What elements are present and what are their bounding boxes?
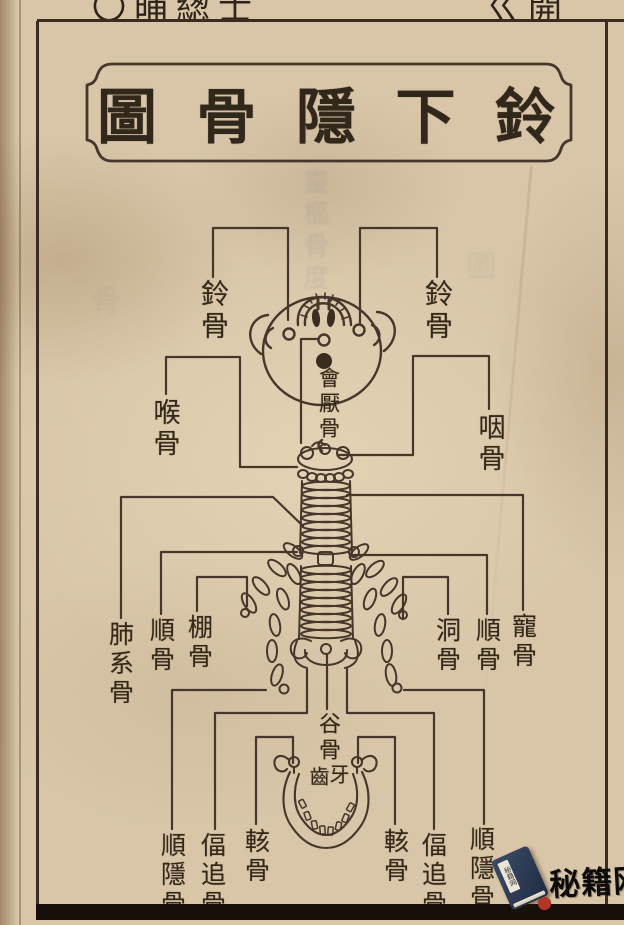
title-char: 骨 [197,69,257,156]
scanned-page: 〇晡緫士 ㄍ開 靈樞骨度 骨 圖 [0,0,624,925]
label-kai-gu-right: 輆骨 [383,828,408,886]
label-shun-gu-right: 順骨 [475,617,500,675]
label-hou-gu: 喉骨 [151,398,178,460]
title-char: 圖 [97,69,157,156]
book-icon-label: 秘籍网 [497,860,520,894]
title-char: 隱 [296,69,356,156]
label-teeth-ya: 牙 [328,764,348,788]
label-yan-gu: 咽骨 [476,413,503,475]
label-chong-gu: 寵骨 [511,613,536,671]
top-fragment-left: 〇晡緫士 [92,0,260,19]
label-shun-yin-gu-right: 順隱骨 [469,826,494,913]
label-gu-gu: 谷骨 [316,712,338,764]
label-ling-gu-left: 鈴骨 [199,279,227,343]
frame-left-border [36,21,39,907]
watermark: 秘籍网 秘籍网 [492,845,624,925]
top-fragment-right: ㄍ開 [486,0,570,19]
label-dong-gu: 洞骨 [435,617,460,675]
label-ling-gu-right: 鈴骨 [423,279,451,343]
label-peng-gu: 棚骨 [187,614,212,672]
trachea-illustration [239,442,409,693]
page-title: 圖 骨 隱 下 鈴 [97,74,555,150]
label-hui-yan-gu: 會厭骨 [318,367,339,442]
title-char: 鈴 [495,69,555,156]
label-kai-gu-left: 輆骨 [244,828,269,886]
top-edge-strip: 〇晡緫士 ㄍ開 [0,0,624,19]
label-shun-gu-left: 順骨 [149,617,174,675]
frame-top-border [37,19,624,22]
title-char: 下 [396,69,456,156]
frame-right-border [605,21,608,907]
watermark-site-name: 秘籍网 [548,855,624,905]
page-edge-shadow [0,0,18,925]
page-fold-line [19,0,21,925]
label-fei-xi-gu: 肺系骨 [108,621,133,708]
label-teeth-chi: 齒 [308,766,328,790]
